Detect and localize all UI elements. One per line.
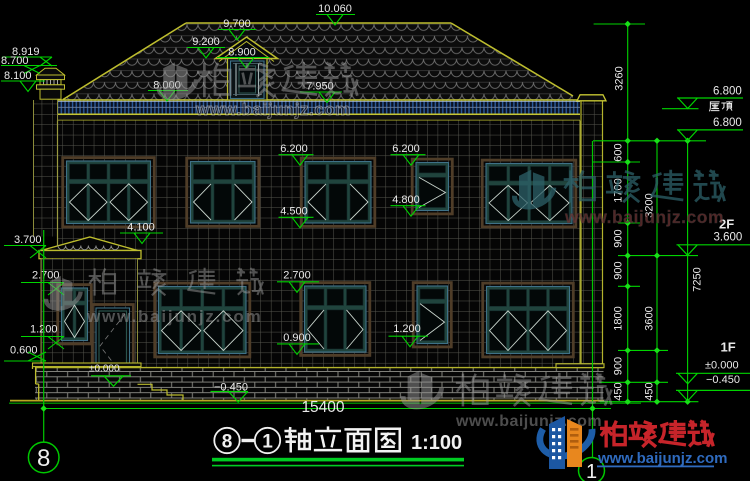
svg-text:1: 1 <box>262 432 273 453</box>
svg-text:6.200: 6.200 <box>392 143 420 155</box>
svg-text:6.200: 6.200 <box>280 143 308 155</box>
svg-text:8: 8 <box>222 432 233 453</box>
svg-text:450: 450 <box>643 382 655 400</box>
svg-text:900: 900 <box>612 357 624 375</box>
svg-text:0.900: 0.900 <box>283 332 311 344</box>
svg-text:15400: 15400 <box>301 399 344 416</box>
svg-text:3600: 3600 <box>643 306 655 330</box>
svg-text:www.baijunjz.com: www.baijunjz.com <box>597 450 727 467</box>
svg-text:4.100: 4.100 <box>127 222 155 234</box>
svg-text:9.700: 9.700 <box>223 18 251 30</box>
svg-text:600: 600 <box>612 143 624 161</box>
svg-text:4.500: 4.500 <box>280 206 308 218</box>
svg-text:10.060: 10.060 <box>318 3 352 15</box>
svg-text:7250: 7250 <box>691 267 703 291</box>
svg-text:2.700: 2.700 <box>283 270 311 282</box>
svg-text:3.600: 3.600 <box>714 232 743 244</box>
svg-text:6.800: 6.800 <box>713 117 742 129</box>
svg-text:4.800: 4.800 <box>392 194 420 206</box>
svg-text:1800: 1800 <box>612 306 624 330</box>
svg-text:900: 900 <box>612 261 624 279</box>
svg-text:−0.450: −0.450 <box>706 374 740 386</box>
svg-text:www.baijunjz.com: www.baijunjz.com <box>564 207 724 227</box>
svg-text:±0.000: ±0.000 <box>89 364 120 375</box>
svg-text:450: 450 <box>612 382 624 400</box>
svg-text:1: 1 <box>586 461 597 481</box>
svg-text:8.100: 8.100 <box>4 70 32 82</box>
svg-text:8: 8 <box>37 445 50 472</box>
svg-text:9.200: 9.200 <box>192 36 220 48</box>
svg-text:±0.000: ±0.000 <box>705 360 739 372</box>
svg-text:www.baijunjz.com: www.baijunjz.com <box>86 307 263 326</box>
svg-text:3260: 3260 <box>613 66 625 90</box>
svg-text:1.200: 1.200 <box>393 323 421 335</box>
svg-text:3.700: 3.700 <box>14 234 42 246</box>
svg-text:6.800: 6.800 <box>713 86 742 98</box>
svg-text:1F: 1F <box>721 340 736 355</box>
svg-text:1:100: 1:100 <box>411 432 462 454</box>
svg-text:900: 900 <box>612 229 624 247</box>
svg-text:8.900: 8.900 <box>228 47 256 59</box>
svg-text:www.baijunjz.com: www.baijunjz.com <box>195 100 351 119</box>
